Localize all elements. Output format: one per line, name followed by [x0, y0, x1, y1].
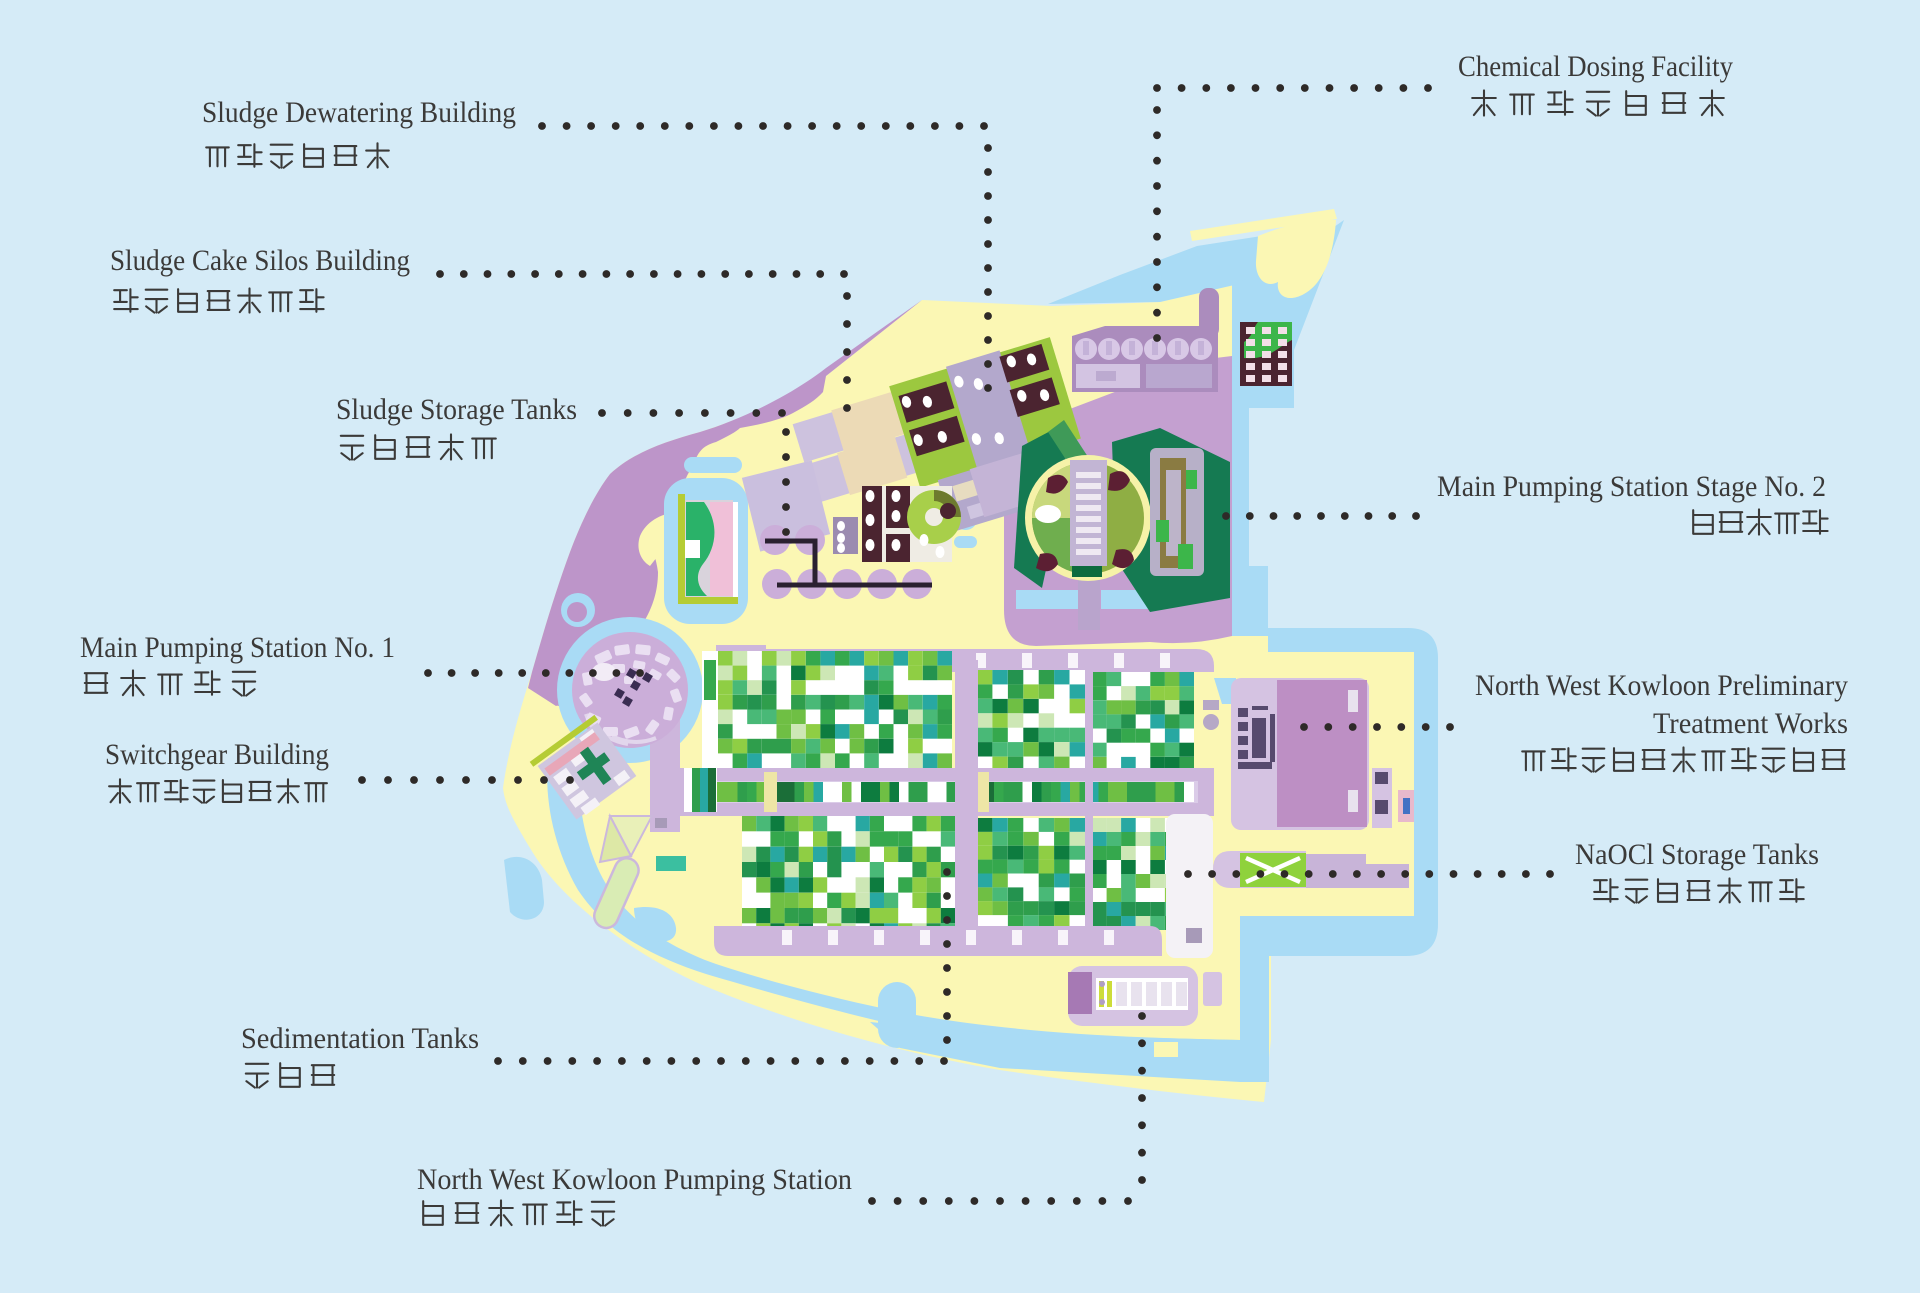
- svg-text:North West Kowloon Pumping Sta: North West Kowloon Pumping Station: [417, 1163, 852, 1196]
- svg-text:Sedimentation Tanks: Sedimentation Tanks: [241, 1022, 479, 1055]
- svg-text:North West Kowloon Preliminary: North West Kowloon Preliminary: [1475, 669, 1848, 702]
- svg-text:Switchgear Building: Switchgear Building: [105, 738, 329, 771]
- svg-text:Main Pumping Station No. 1: Main Pumping Station No. 1: [80, 631, 395, 664]
- svg-text:Sludge Storage Tanks: Sludge Storage Tanks: [336, 393, 577, 426]
- svg-text:Chemical Dosing Facility: Chemical Dosing Facility: [1458, 50, 1733, 83]
- svg-text:Main Pumping Station Stage No.: Main Pumping Station Stage No. 2: [1437, 470, 1826, 503]
- svg-text:Sludge Cake Silos Building: Sludge Cake Silos Building: [110, 244, 410, 277]
- svg-text:Treatment Works: Treatment Works: [1653, 707, 1848, 740]
- svg-text:NaOCl Storage Tanks: NaOCl Storage Tanks: [1575, 838, 1819, 871]
- svg-text:Sludge Dewatering Building: Sludge Dewatering Building: [202, 96, 516, 129]
